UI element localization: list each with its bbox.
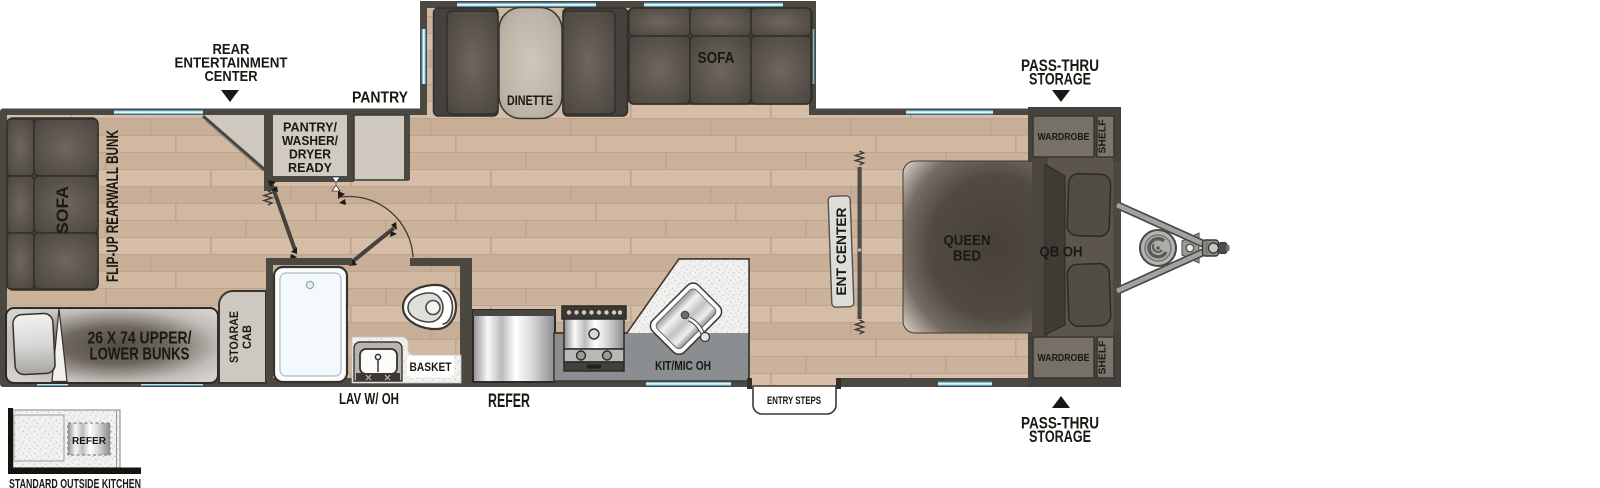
svg-text:REFER: REFER	[488, 391, 530, 412]
svg-text:PANTRY/: PANTRY/	[283, 121, 338, 135]
svg-text:QUEEN: QUEEN	[944, 233, 991, 249]
svg-text:WASHER/: WASHER/	[282, 134, 338, 148]
svg-text:WARDROBE: WARDROBE	[1038, 131, 1090, 143]
svg-text:SHELF: SHELF	[1097, 340, 1109, 375]
svg-text:WARDROBE: WARDROBE	[1038, 352, 1090, 364]
svg-text:ENTRY STEPS: ENTRY STEPS	[767, 395, 821, 407]
svg-text:ENT CENTER: ENT CENTER	[833, 208, 849, 296]
svg-text:SHELF: SHELF	[1097, 119, 1109, 154]
svg-text:STANDARD OUTSIDE KITCHEN: STANDARD OUTSIDE KITCHEN	[9, 476, 141, 488]
svg-text:REFER: REFER	[72, 435, 106, 447]
svg-text:STORAGE: STORAGE	[1029, 428, 1091, 446]
svg-text:DINETTE: DINETTE	[507, 93, 553, 108]
svg-text:DRYER: DRYER	[289, 148, 331, 162]
svg-text:READY: READY	[288, 161, 333, 175]
svg-text:LAV W/ OH: LAV W/ OH	[339, 391, 399, 408]
svg-text:SOFA: SOFA	[53, 186, 72, 234]
svg-text:KIT/MIC OH: KIT/MIC OH	[655, 358, 711, 373]
svg-text:STOARAE: STOARAE	[229, 311, 241, 363]
svg-text:BED: BED	[953, 249, 981, 265]
svg-text:CENTER: CENTER	[205, 68, 258, 85]
svg-text:QB OH: QB OH	[1040, 245, 1083, 261]
svg-text:STORAGE: STORAGE	[1029, 71, 1091, 89]
svg-text:BASKET: BASKET	[410, 360, 453, 374]
svg-text:LOWER BUNKS: LOWER BUNKS	[90, 344, 190, 364]
svg-text:CAB: CAB	[242, 325, 254, 349]
svg-text:SOFA: SOFA	[698, 50, 735, 67]
svg-text:PANTRY: PANTRY	[352, 90, 409, 107]
svg-text:FLIP-UP REARWALL BUNK: FLIP-UP REARWALL BUNK	[104, 130, 122, 282]
